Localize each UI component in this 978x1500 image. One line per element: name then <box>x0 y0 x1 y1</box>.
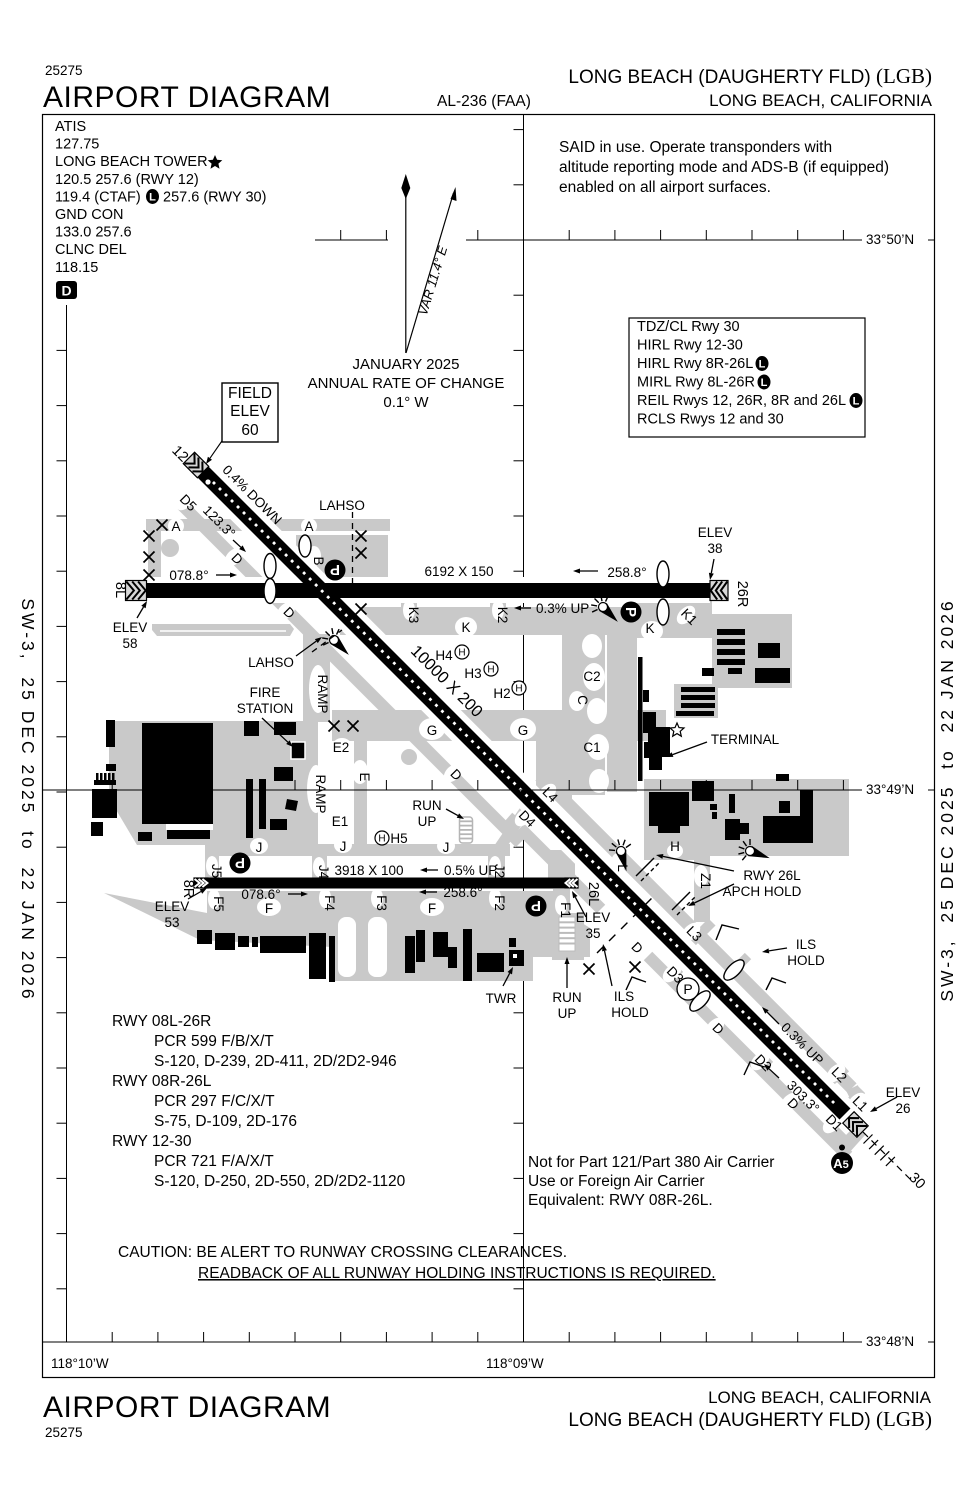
svg-text:RWY 26L: RWY 26L <box>743 868 801 883</box>
svg-text:F3: F3 <box>374 895 389 911</box>
svg-text:53: 53 <box>164 915 179 930</box>
svg-text:LONG BEACH (DAUGHERTY FLD) (LG: LONG BEACH (DAUGHERTY FLD) (LGB) <box>568 64 932 88</box>
svg-text:AIRPORT DIAGRAM: AIRPORT DIAGRAM <box>43 81 331 114</box>
svg-text:TDZ/CL Rwy 30: TDZ/CL Rwy 30 <box>637 319 740 335</box>
svg-text:F4: F4 <box>322 895 337 911</box>
svg-text:RUN: RUN <box>552 990 581 1005</box>
svg-text:CLNC DEL: CLNC DEL <box>55 242 127 258</box>
svg-text:Z1: Z1 <box>698 873 713 889</box>
svg-text:HIRL Rwy 8R-26L: HIRL Rwy 8R-26L <box>637 356 753 372</box>
svg-text:0.1° W: 0.1° W <box>383 394 429 411</box>
svg-text:133.0 257.6: 133.0 257.6 <box>55 225 132 241</box>
svg-text:L: L <box>615 864 630 872</box>
svg-text:H: H <box>458 648 465 659</box>
svg-text:0.3% UP: 0.3% UP <box>536 601 589 616</box>
svg-text:LONG BEACH, CALIFORNIA: LONG BEACH, CALIFORNIA <box>709 91 933 110</box>
svg-text:FIRE: FIRE <box>250 685 281 700</box>
svg-text:078.6°: 078.6° <box>241 887 280 902</box>
svg-text:ILS: ILS <box>614 989 634 1004</box>
svg-text:ELEV: ELEV <box>698 525 733 540</box>
svg-text:ELEV: ELEV <box>230 403 270 420</box>
svg-text:J5: J5 <box>209 864 224 878</box>
svg-text:PCR 721 F/A/X/T: PCR 721 F/A/X/T <box>154 1153 274 1170</box>
svg-text:H4: H4 <box>435 648 453 663</box>
svg-text:TWR: TWR <box>486 991 517 1006</box>
svg-text:ELEV: ELEV <box>576 910 611 925</box>
svg-text:33°50’N: 33°50’N <box>866 232 914 247</box>
svg-text:K3: K3 <box>406 607 421 624</box>
svg-text:GND CON: GND CON <box>55 207 123 223</box>
svg-text:26L: 26L <box>585 882 601 906</box>
svg-text:25275: 25275 <box>45 63 83 78</box>
svg-text:REIL Rwys 12, 26R, 8R and 26L: REIL Rwys 12, 26R, 8R and 26L <box>637 393 846 409</box>
svg-text:H3: H3 <box>464 666 481 681</box>
svg-text:PCR 599 F/B/X/T: PCR 599 F/B/X/T <box>154 1033 274 1050</box>
svg-text:F1: F1 <box>558 902 573 918</box>
svg-text:33°48’N: 33°48’N <box>866 1334 914 1349</box>
svg-text:SAID in use. Operate transpond: SAID in use. Operate transponders with <box>559 139 832 156</box>
svg-text:S-75, D-109, 2D-176: S-75, D-109, 2D-176 <box>154 1113 297 1130</box>
svg-text:6192 X 150: 6192 X 150 <box>424 564 493 579</box>
svg-text:LONG BEACH TOWER: LONG BEACH TOWER <box>55 154 208 170</box>
svg-text:ANNUAL RATE OF CHANGE: ANNUAL RATE OF CHANGE <box>308 375 505 392</box>
svg-text:HIRL Rwy 12-30: HIRL Rwy 12-30 <box>637 338 743 354</box>
svg-text:HOLD: HOLD <box>611 1005 649 1020</box>
svg-text:LONG BEACH (DAUGHERTY FLD) (LG: LONG BEACH (DAUGHERTY FLD) (LGB) <box>568 1407 932 1431</box>
svg-text:B: B <box>311 556 326 565</box>
svg-text:SW-3, 25 DEC 2025 to 22 JAN: SW-3, 25 DEC 2025 to 22 JAN 2026 <box>937 598 957 1001</box>
svg-text:C: C <box>575 695 590 705</box>
svg-text:H: H <box>670 839 680 854</box>
svg-text:ILS: ILS <box>796 937 816 952</box>
svg-text:P: P <box>622 607 639 617</box>
svg-text:H: H <box>378 834 385 845</box>
svg-text:F: F <box>428 901 436 916</box>
svg-text:Equivalent: RWY 08R-26L.: Equivalent: RWY 08R-26L. <box>528 1192 713 1209</box>
svg-text:3918 X 100: 3918 X 100 <box>334 863 403 878</box>
svg-text:HOLD: HOLD <box>787 953 825 968</box>
svg-text:C2: C2 <box>583 669 600 684</box>
svg-text:READBACK OF ALL RUNWAY HOLDING: READBACK OF ALL RUNWAY HOLDING INSTRUCTI… <box>198 1265 716 1282</box>
svg-text:118°09’W: 118°09’W <box>486 1356 544 1371</box>
svg-text:RWY 12-30: RWY 12-30 <box>112 1133 192 1150</box>
svg-text:P: P <box>531 897 541 914</box>
svg-text:078.8°: 078.8° <box>169 568 208 583</box>
svg-text:enabled on all airport surface: enabled on all airport surfaces. <box>559 179 771 196</box>
svg-text:L: L <box>853 396 860 408</box>
svg-text:MIRL Rwy 8L-26R: MIRL Rwy 8L-26R <box>637 375 755 391</box>
svg-text:258.8°: 258.8° <box>607 565 646 580</box>
svg-text:E2: E2 <box>333 740 350 755</box>
svg-text:38: 38 <box>707 541 722 556</box>
svg-text:33°49’N: 33°49’N <box>866 782 914 797</box>
svg-text:RWY 08R-26L: RWY 08R-26L <box>112 1073 212 1090</box>
svg-text:LONG BEACH, CALIFORNIA: LONG BEACH, CALIFORNIA <box>708 1388 932 1407</box>
svg-text:35: 35 <box>585 926 600 941</box>
svg-text:257.6 (RWY 30): 257.6 (RWY 30) <box>163 189 266 205</box>
svg-text:J: J <box>256 840 263 855</box>
svg-text:J4: J4 <box>316 865 331 880</box>
svg-text:K: K <box>461 620 470 635</box>
svg-text:P: P <box>330 561 340 578</box>
svg-text:0.5% UP: 0.5% UP <box>444 863 497 878</box>
svg-text:L: L <box>759 359 766 371</box>
svg-text:E1: E1 <box>332 814 349 829</box>
svg-text:L: L <box>761 377 768 389</box>
svg-text:E: E <box>357 772 372 781</box>
svg-text:H: H <box>515 684 522 695</box>
svg-text:RAMP: RAMP <box>313 774 328 813</box>
svg-text:A5: A5 <box>833 1156 849 1171</box>
svg-text:J: J <box>340 839 347 854</box>
svg-text:ELEV: ELEV <box>155 899 190 914</box>
svg-text:LAHSO: LAHSO <box>319 498 365 513</box>
svg-text:CAUTION: BE ALERT TO RUNWAY CR: CAUTION: BE ALERT TO RUNWAY CROSSING CLE… <box>118 1244 567 1261</box>
svg-text:FIELD: FIELD <box>228 385 272 402</box>
svg-text:60: 60 <box>241 422 259 439</box>
svg-text:F2: F2 <box>492 895 507 911</box>
svg-text:G: G <box>427 723 438 738</box>
svg-text:127.75: 127.75 <box>55 137 99 153</box>
svg-text:L: L <box>149 192 156 204</box>
svg-text:SW-3, 25 DEC 2025 to 22 JAN: SW-3, 25 DEC 2025 to 22 JAN 2026 <box>18 598 38 1001</box>
svg-text:ELEV: ELEV <box>113 620 148 635</box>
svg-text:P: P <box>235 854 245 871</box>
svg-text:RWY 08L-26R: RWY 08L-26R <box>112 1013 211 1030</box>
svg-text:258.6°: 258.6° <box>443 885 482 900</box>
svg-text:120.5 257.6 (RWY 12): 120.5 257.6 (RWY 12) <box>55 172 199 188</box>
svg-text:D: D <box>61 283 71 299</box>
svg-text:AL-236 (FAA): AL-236 (FAA) <box>437 93 531 110</box>
svg-text:RCLS Rwys 12 and 30: RCLS Rwys 12 and 30 <box>637 412 784 428</box>
svg-text:118°10’W: 118°10’W <box>51 1356 109 1371</box>
svg-text:C1: C1 <box>583 740 600 755</box>
svg-text:LAHSO: LAHSO <box>248 655 294 670</box>
svg-text:S-120, D-250, 2D-550, 2D/2D2-1: S-120, D-250, 2D-550, 2D/2D2-1120 <box>154 1173 406 1190</box>
svg-text:J: J <box>443 840 450 855</box>
svg-text:ATIS: ATIS <box>55 119 86 135</box>
svg-text:8L: 8L <box>112 582 128 598</box>
svg-text:APCH HOLD: APCH HOLD <box>723 884 802 899</box>
svg-text:H2: H2 <box>493 686 510 701</box>
svg-text:RAMP: RAMP <box>315 674 330 713</box>
svg-text:TERMINAL: TERMINAL <box>711 732 780 747</box>
svg-text:ELEV: ELEV <box>886 1085 921 1100</box>
svg-text:K: K <box>645 621 654 636</box>
svg-text:A: A <box>171 519 180 534</box>
svg-text:K2: K2 <box>495 607 510 624</box>
svg-text:8R: 8R <box>180 880 196 899</box>
svg-text:UP: UP <box>558 1006 577 1021</box>
svg-text:J2: J2 <box>492 864 507 878</box>
svg-text:RUN: RUN <box>412 798 441 813</box>
svg-text:H: H <box>487 665 494 676</box>
svg-text:G: G <box>518 723 529 738</box>
svg-text:26: 26 <box>895 1101 910 1116</box>
svg-text:58: 58 <box>122 636 137 651</box>
svg-text:STATION: STATION <box>237 701 294 716</box>
svg-text:altitude reporting mode and AD: altitude reporting mode and ADS-B (if eq… <box>559 159 889 176</box>
svg-text:Use or Foreign Air Carrier: Use or Foreign Air Carrier <box>528 1173 705 1190</box>
svg-text:H5: H5 <box>390 831 407 846</box>
svg-text:AIRPORT DIAGRAM: AIRPORT DIAGRAM <box>43 1391 331 1424</box>
svg-text:26R: 26R <box>734 581 750 608</box>
svg-text:PCR 297 F/C/X/T: PCR 297 F/C/X/T <box>154 1093 275 1110</box>
svg-text:Not for Part 121/Part 380 Air: Not for Part 121/Part 380 Air Carrier <box>528 1154 774 1171</box>
svg-text:UP: UP <box>418 814 437 829</box>
svg-text:A: A <box>304 519 313 534</box>
svg-text:S-120, D-239, 2D-411, 2D/2D2-9: S-120, D-239, 2D-411, 2D/2D2-946 <box>154 1053 397 1070</box>
svg-text:JANUARY 2025: JANUARY 2025 <box>352 356 459 373</box>
svg-text:25275: 25275 <box>45 1425 83 1440</box>
svg-text:F5: F5 <box>211 896 226 912</box>
svg-text:F: F <box>265 901 273 916</box>
svg-text:P: P <box>683 981 692 997</box>
svg-text:119.4 (CTAF): 119.4 (CTAF) <box>55 189 141 205</box>
svg-text:118.15: 118.15 <box>55 260 98 276</box>
